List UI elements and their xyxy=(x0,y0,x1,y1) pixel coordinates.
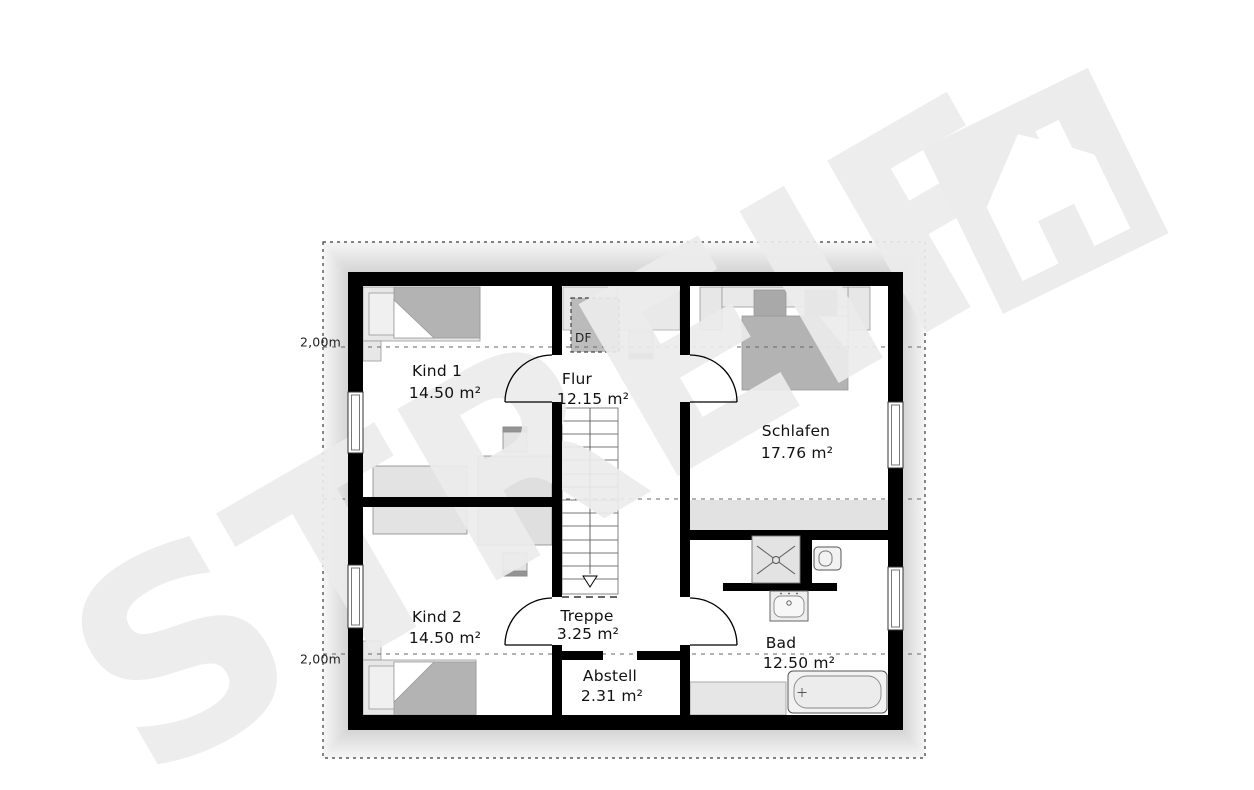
shower xyxy=(752,536,800,583)
room-label-kind2-area: 14.50 m² xyxy=(409,629,481,647)
furniture-bad xyxy=(690,682,786,715)
room-label-kind1-area: 14.50 m² xyxy=(409,384,481,402)
washbasin xyxy=(770,591,808,621)
room-label-abstell-name: Abstell xyxy=(583,667,637,685)
room-label-kind1-name: Kind 1 xyxy=(412,362,462,380)
room-label-schlafen-area: 17.76 m² xyxy=(761,444,833,462)
window-kind2 xyxy=(348,565,363,628)
room-label-treppe-name: Treppe xyxy=(560,607,613,625)
toilet xyxy=(814,547,841,570)
window-kind1 xyxy=(348,392,363,453)
window-schlafen xyxy=(888,402,903,468)
window-bad xyxy=(888,567,903,630)
dimension-label-2m-top: 2,00m xyxy=(300,335,341,350)
room-label-treppe-area: 3.25 m² xyxy=(557,625,619,643)
room-label-kind2-name: Kind 2 xyxy=(412,608,462,626)
room-label-bad-area: 12.50 m² xyxy=(763,654,835,672)
room-label-abstell-area: 2.31 m² xyxy=(581,687,643,705)
room-label-flur-name: Flur xyxy=(562,370,592,388)
bathtub xyxy=(788,671,887,713)
room-label-bad-name: Bad xyxy=(766,634,797,652)
roof-window-label: DF xyxy=(575,331,592,345)
room-label-schlafen-name: Schlafen xyxy=(762,422,830,440)
dimension-label-2m-bottom: 2,00m xyxy=(300,652,341,667)
room-label-flur-area: 12.15 m² xyxy=(557,390,629,408)
floor-plan: STREIF xyxy=(0,0,1254,790)
